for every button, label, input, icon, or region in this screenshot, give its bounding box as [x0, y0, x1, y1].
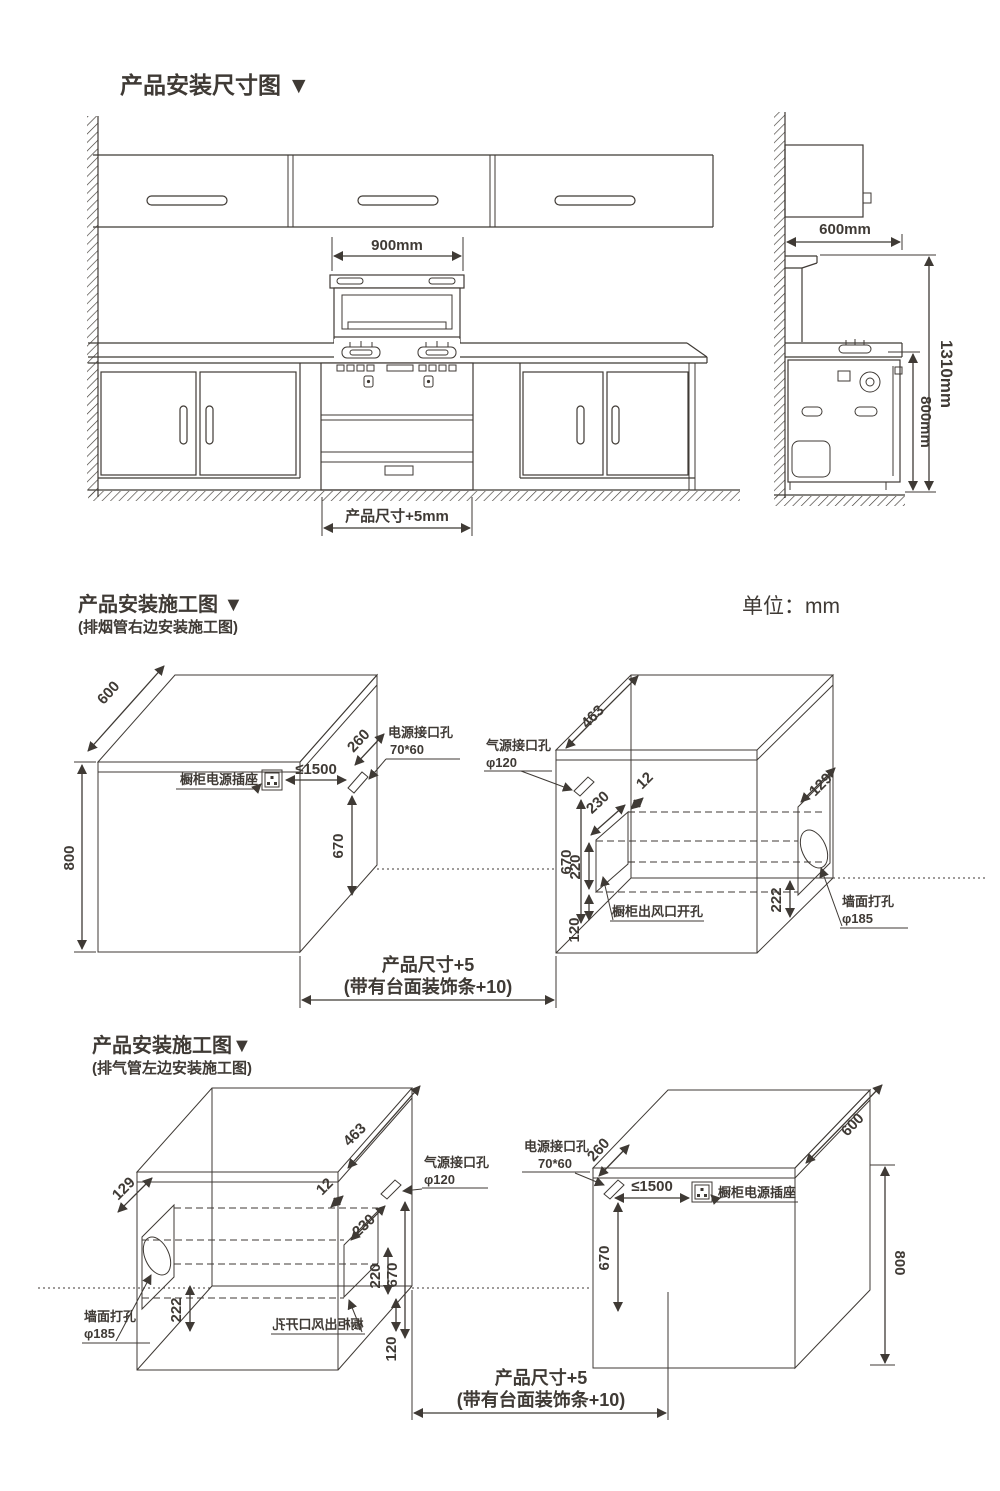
socket-label: 橱柜电源插座 — [718, 1185, 796, 1200]
section-install-left-flue: 产品安装施工图▼ (排气管左边安装施工图) 463 气源接口孔 φ120 — [38, 1033, 908, 1420]
svg-text:12: 12 — [633, 769, 657, 793]
door-handle — [577, 406, 584, 444]
dim-wall-bottom: 222 — [168, 1286, 190, 1331]
hood-width-label: 900mm — [371, 237, 423, 254]
section1-title: 产品安装尺寸图 ▼ — [120, 72, 310, 98]
power-socket-icon — [692, 1182, 712, 1202]
cabinet-handle — [147, 196, 227, 205]
integrated-stove-front — [321, 339, 473, 490]
burner-side — [839, 345, 871, 353]
dim-product-width: 产品尺寸+5mm — [322, 497, 472, 536]
power-hole-label: 电源接口孔 — [388, 725, 453, 740]
product-gap-note: (带有台面装饰条+10) — [344, 976, 513, 997]
product-width-label: 产品尺寸+5mm — [345, 507, 449, 525]
door-handle — [206, 406, 213, 444]
dim-cabinet-depth: 600mm — [787, 221, 902, 250]
upper-cabinets — [93, 155, 713, 227]
svg-text:600: 600 — [838, 1110, 868, 1140]
svg-text:12: 12 — [313, 1175, 337, 1199]
section2-subtitle: (排烟管右边安装施工图) — [78, 618, 238, 636]
outlet-opening-label: 橱柜出风口开孔 — [612, 904, 703, 919]
cabinet-depth-label: 600mm — [819, 221, 871, 238]
dim-duct-bottom: 120 — [566, 895, 589, 943]
section-install-right-flue: 产品安装施工图 ▼ (排烟管右边安装施工图) 单位：mm 600 800 — [61, 592, 985, 1008]
svg-text:222: 222 — [168, 1297, 185, 1322]
dim-box-height: 800 — [61, 762, 96, 952]
dim-duct-bottom: 120 — [383, 1299, 400, 1362]
wall-hatch-left — [87, 116, 98, 497]
floor-hatch-side — [774, 496, 905, 506]
svg-text:220: 220 — [567, 854, 584, 879]
total-height-label: 1310mm — [937, 340, 956, 408]
wall-hatch-side — [774, 112, 785, 498]
svg-text:230: 230 — [583, 788, 613, 818]
wall-hole-size: φ185 — [842, 911, 873, 926]
dim-wall-bottom: 222 — [768, 881, 790, 917]
dim-duct-inset: 12 — [631, 769, 657, 809]
gas-hole-label: 气源接口孔 — [424, 1155, 489, 1170]
socket-label: 橱柜电源插座 — [180, 772, 258, 787]
counter-height-label: 800mm — [917, 396, 934, 448]
svg-text:800: 800 — [891, 1250, 908, 1275]
outlet-opening-label-mirrored: 橱柜出风口开孔 — [272, 1317, 363, 1332]
svg-text:463: 463 — [578, 702, 608, 732]
dim-gas-hole-height: 670 — [384, 1202, 405, 1338]
installation-manual-page: 产品安装尺寸图 ▼ 900mm — [0, 0, 1000, 1491]
power-socket-icon — [262, 770, 282, 790]
svg-text:800: 800 — [61, 845, 78, 870]
cabinet-handle — [358, 196, 438, 205]
power-inlet-hole — [604, 1180, 624, 1199]
svg-text:670: 670 — [384, 1262, 401, 1287]
dim-hood-width: 900mm — [332, 237, 463, 271]
section2-title: 产品安装施工图 ▼ — [78, 592, 243, 616]
svg-text:≤1500: ≤1500 — [631, 1178, 673, 1195]
unit-label: 单位：mm — [742, 595, 840, 618]
power-hole-label: 电源接口孔 — [524, 1139, 589, 1154]
dim-duct-width: 230 — [583, 788, 625, 835]
section3-title: 产品安装施工图▼ — [92, 1033, 252, 1057]
iso-box-power-side-mirrored: 600 800 电源接口孔 70*60 260 ≤1500 — [522, 1085, 908, 1368]
dim-product-gap: 产品尺寸+5 (带有台面装饰条+10) — [300, 954, 556, 1008]
section-dimension-diagram: 产品安装尺寸图 ▼ 900mm — [87, 72, 956, 536]
svg-text:670: 670 — [596, 1245, 613, 1270]
gas-hole-size: φ120 — [424, 1172, 455, 1187]
front-elevation-view: 900mm — [87, 116, 740, 536]
section3-subtitle: (排气管左边安装施工图) — [92, 1059, 252, 1077]
product-gap-label: 产品尺寸+5 — [495, 1367, 588, 1388]
svg-text:463: 463 — [340, 1120, 370, 1150]
svg-text:129: 129 — [109, 1174, 139, 1204]
gas-hole-size: φ120 — [486, 755, 517, 770]
wall-hole-size: φ185 — [84, 1326, 115, 1341]
dim-power-hole-offset: 260 — [584, 1135, 629, 1176]
dim-socket-distance: ≤1500 — [286, 761, 346, 780]
dim-box-depth: 600 — [806, 1085, 882, 1163]
dim-top-depth: 463 — [566, 676, 638, 748]
iso-box-duct-side-mirrored: 463 气源接口孔 φ120 670 230 12 220 — [82, 1086, 489, 1370]
gas-inlet-hole — [574, 777, 594, 796]
dim-socket-distance: ≤1500 — [615, 1178, 689, 1198]
dim-wall-inset: 129 — [109, 1174, 152, 1212]
door-handle — [180, 406, 187, 444]
svg-text:120: 120 — [566, 917, 583, 942]
range-hood — [330, 275, 464, 343]
power-inlet-hole — [348, 772, 368, 793]
dim-power-hole-offset: 260 — [344, 726, 384, 765]
svg-text:橱柜出风口开孔: 橱柜出风口开孔 — [272, 1317, 363, 1332]
gas-inlet-hole — [381, 1180, 401, 1199]
gas-hole-label: 气源接口孔 — [486, 738, 551, 753]
wall-hole-label: 墙面打孔 — [842, 894, 894, 909]
door-handle — [612, 406, 619, 444]
wall-hole-panel — [142, 1205, 174, 1309]
svg-text:220: 220 — [367, 1263, 384, 1288]
product-gap-label: 产品尺寸+5 — [382, 954, 475, 975]
installation-diagram-canvas: 产品安装尺寸图 ▼ 900mm — [0, 0, 1000, 1491]
svg-text:670: 670 — [330, 833, 347, 858]
svg-text:260: 260 — [344, 726, 374, 756]
floor-hatch — [88, 491, 740, 501]
svg-text:≤1500: ≤1500 — [295, 761, 337, 778]
dim-product-gap: 产品尺寸+5 (带有台面装饰条+10) — [412, 1290, 668, 1420]
dim-box-height: 800 — [870, 1165, 908, 1365]
iso-box-power-side: 600 800 橱柜电源插座 ≤1500 — [61, 666, 460, 952]
cabinet-handle — [555, 196, 635, 205]
side-elevation-view: 600mm — [774, 112, 956, 506]
iso-box-duct-side: 463 气源接口孔 φ120 670 230 12 220 — [484, 675, 908, 953]
svg-text:222: 222 — [768, 887, 785, 912]
dim-power-hole-height: 670 — [330, 796, 352, 895]
svg-text:600: 600 — [94, 678, 123, 708]
product-gap-note: (带有台面装饰条+10) — [457, 1389, 626, 1410]
power-hole-size: 70*60 — [538, 1156, 572, 1171]
stove-side-profile — [785, 256, 902, 490]
upper-cabinet-side — [785, 145, 863, 217]
wall-hole-label: 墙面打孔 — [84, 1309, 136, 1324]
power-hole-size: 70*60 — [390, 742, 424, 757]
dim-power-hole-height: 670 — [596, 1203, 618, 1311]
svg-text:120: 120 — [383, 1336, 400, 1361]
dim-box-depth: 600 — [88, 666, 164, 751]
duct-outlet-opening — [596, 812, 628, 892]
